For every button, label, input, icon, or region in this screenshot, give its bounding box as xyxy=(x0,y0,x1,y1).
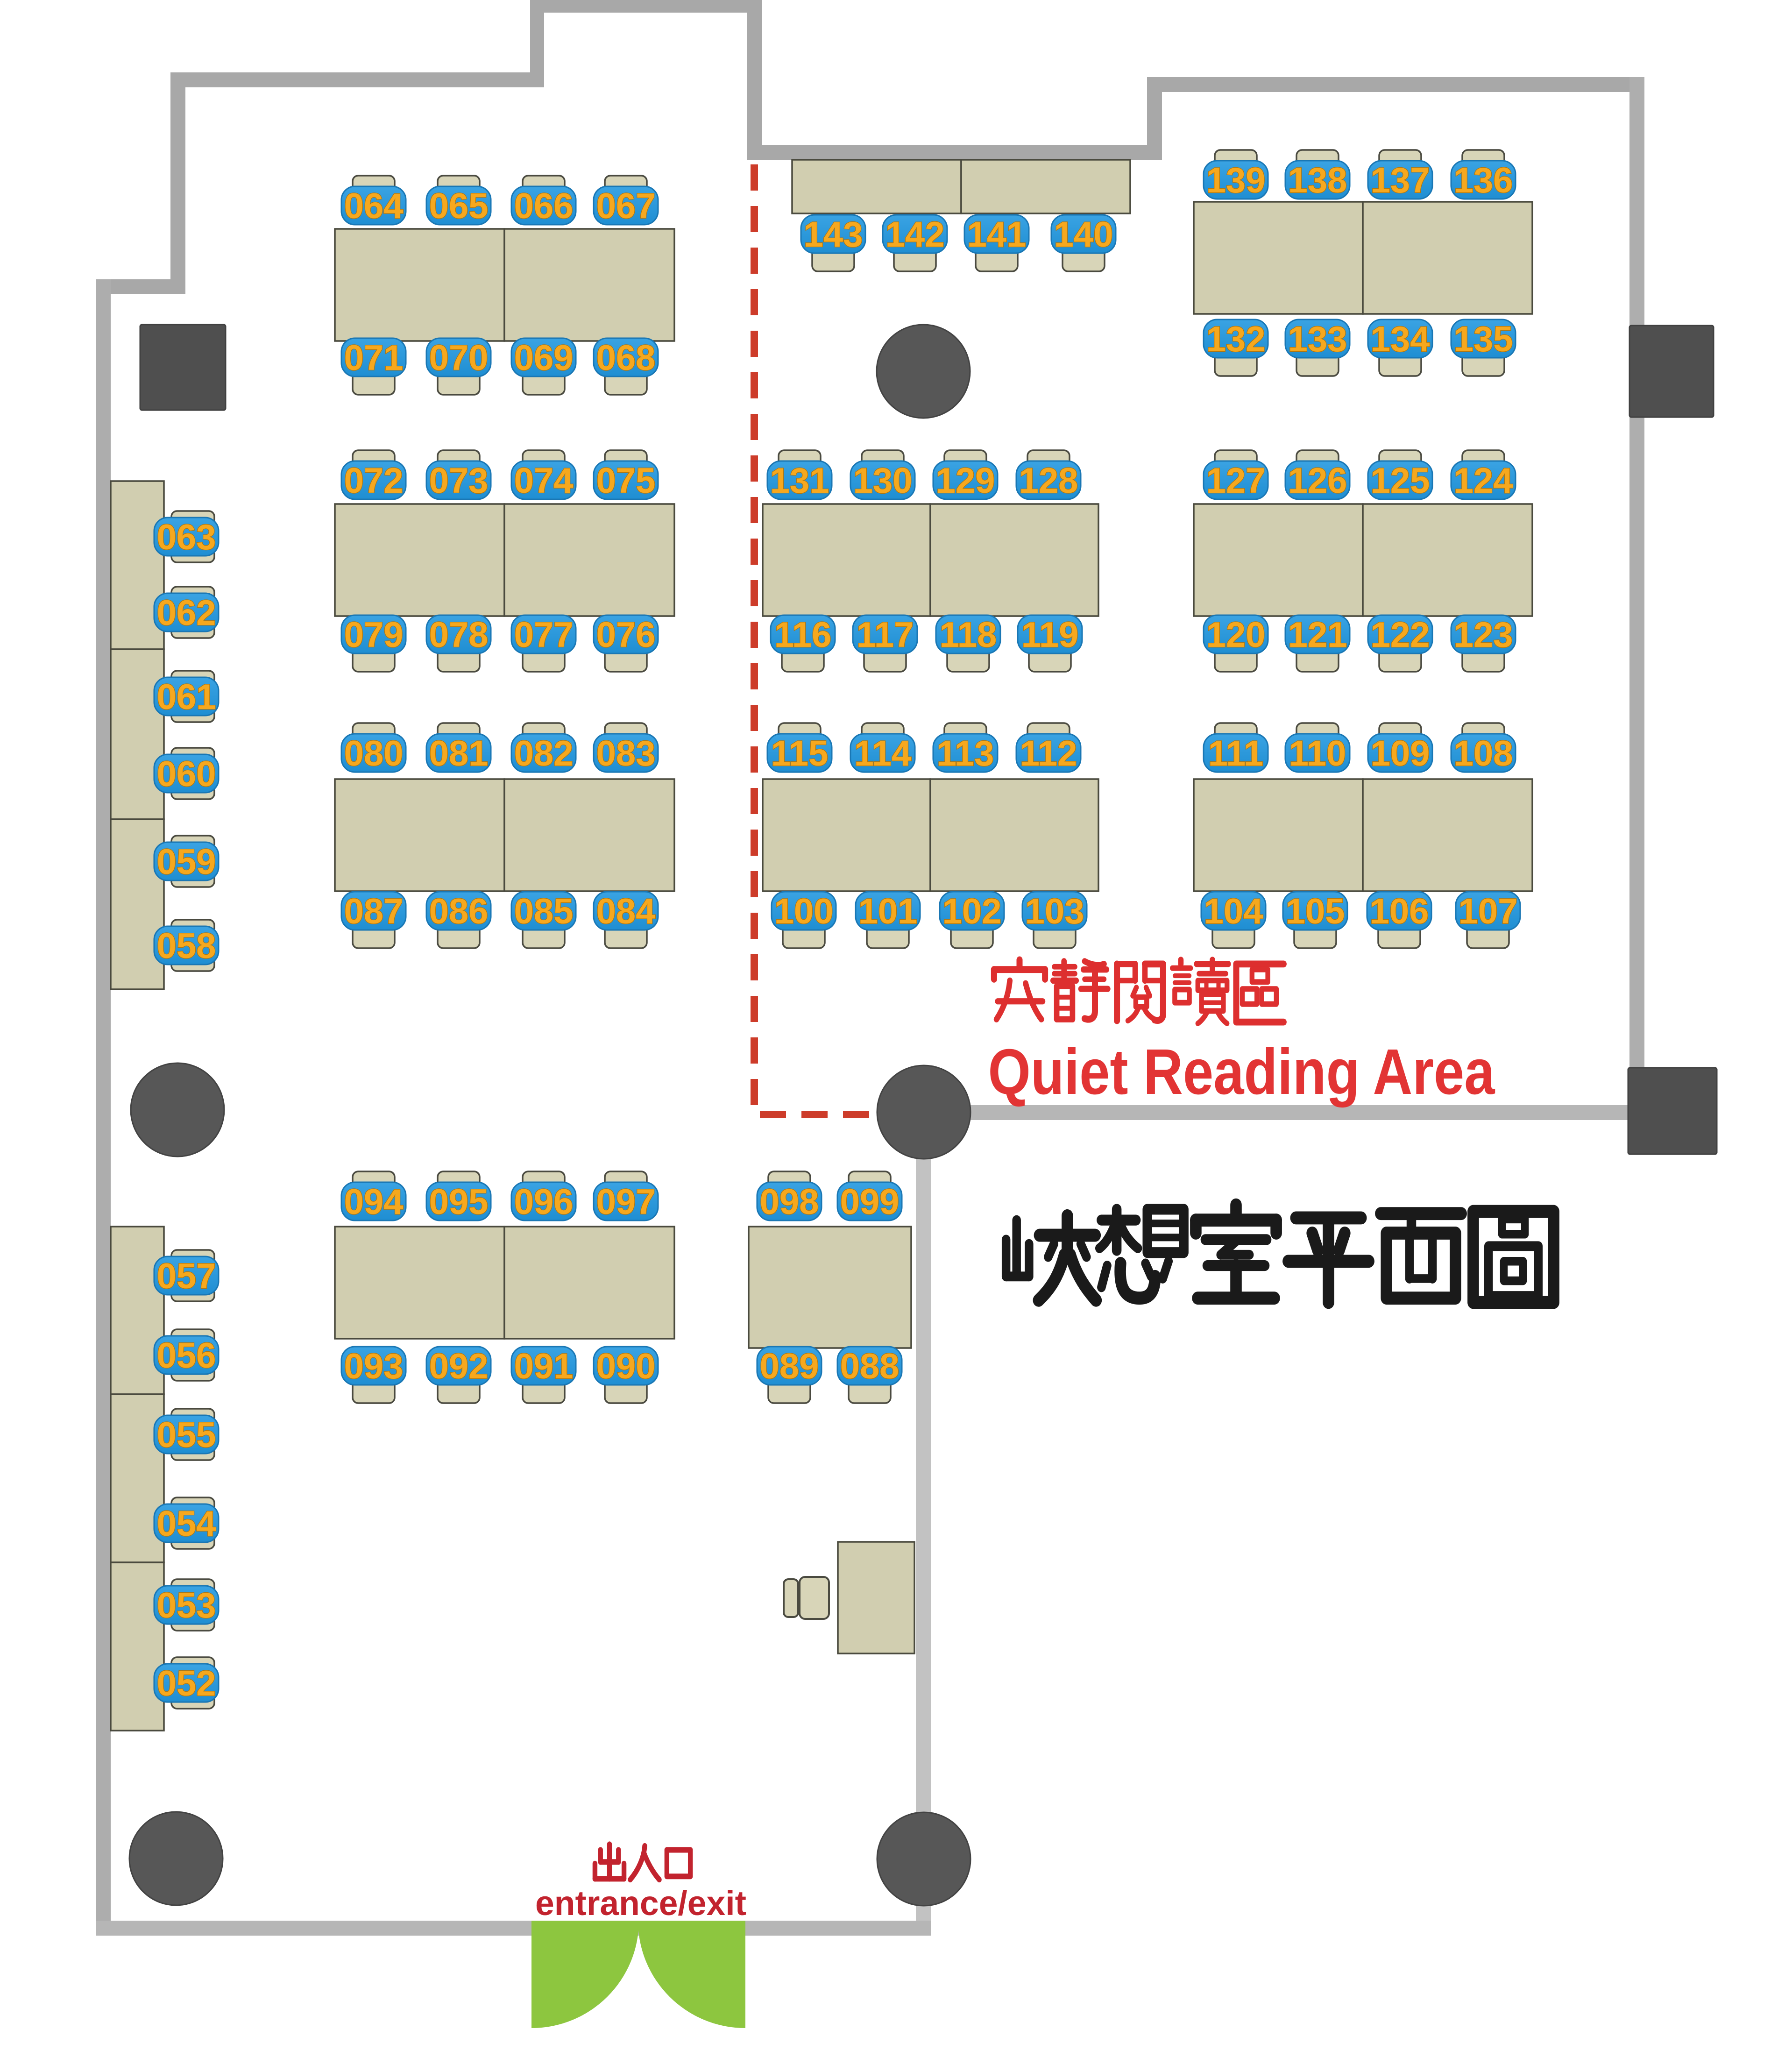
svg-text:099: 099 xyxy=(840,1182,900,1222)
svg-text:062: 062 xyxy=(157,593,216,633)
svg-text:108: 108 xyxy=(1454,734,1513,773)
svg-text:101: 101 xyxy=(858,892,918,931)
svg-text:Quiet Reading Area: Quiet Reading Area xyxy=(988,1036,1495,1108)
svg-text:122: 122 xyxy=(1371,615,1430,655)
svg-text:074: 074 xyxy=(514,461,574,501)
svg-text:082: 082 xyxy=(514,734,574,773)
svg-text:107: 107 xyxy=(1459,892,1518,931)
svg-text:136: 136 xyxy=(1454,161,1513,200)
svg-text:116: 116 xyxy=(774,615,832,655)
svg-text:113: 113 xyxy=(937,734,994,773)
svg-text:078: 078 xyxy=(429,615,489,655)
svg-text:109: 109 xyxy=(1371,734,1430,773)
svg-text:072: 072 xyxy=(344,461,404,501)
svg-text:117: 117 xyxy=(857,615,914,655)
svg-text:115: 115 xyxy=(771,734,829,773)
svg-text:086: 086 xyxy=(429,892,489,931)
svg-text:119: 119 xyxy=(1021,615,1079,655)
svg-text:138: 138 xyxy=(1288,161,1347,200)
svg-text:123: 123 xyxy=(1454,615,1513,655)
svg-text:100: 100 xyxy=(774,892,834,931)
svg-text:134: 134 xyxy=(1371,319,1430,359)
svg-text:069: 069 xyxy=(514,338,574,378)
svg-text:058: 058 xyxy=(157,926,216,966)
svg-text:132: 132 xyxy=(1206,319,1266,359)
svg-text:059: 059 xyxy=(157,842,216,882)
svg-text:063: 063 xyxy=(157,518,216,557)
svg-text:110: 110 xyxy=(1289,734,1346,773)
svg-text:060: 060 xyxy=(157,754,216,794)
svg-text:090: 090 xyxy=(596,1347,656,1386)
svg-text:084: 084 xyxy=(596,892,656,931)
svg-text:095: 095 xyxy=(429,1182,489,1222)
svg-text:055: 055 xyxy=(157,1415,216,1455)
svg-text:065: 065 xyxy=(429,186,489,226)
svg-text:057: 057 xyxy=(157,1256,216,1296)
svg-text:137: 137 xyxy=(1371,161,1430,200)
svg-text:091: 091 xyxy=(514,1347,574,1386)
svg-text:102: 102 xyxy=(942,892,1002,931)
svg-text:103: 103 xyxy=(1025,892,1084,931)
svg-text:121: 121 xyxy=(1288,615,1347,655)
svg-text:085: 085 xyxy=(514,892,574,931)
svg-text:124: 124 xyxy=(1454,461,1513,501)
svg-text:052: 052 xyxy=(157,1664,216,1703)
svg-text:118: 118 xyxy=(940,615,997,655)
svg-text:126: 126 xyxy=(1288,461,1347,501)
svg-text:139: 139 xyxy=(1206,161,1266,200)
svg-text:054: 054 xyxy=(157,1504,216,1544)
svg-text:076: 076 xyxy=(596,615,656,655)
svg-text:105: 105 xyxy=(1286,892,1345,931)
svg-text:104: 104 xyxy=(1204,892,1263,931)
svg-text:089: 089 xyxy=(760,1347,819,1386)
svg-text:141: 141 xyxy=(967,215,1027,255)
svg-text:120: 120 xyxy=(1206,615,1266,655)
svg-text:067: 067 xyxy=(596,186,656,226)
svg-text:129: 129 xyxy=(936,461,995,501)
svg-text:094: 094 xyxy=(344,1182,404,1222)
svg-text:087: 087 xyxy=(344,892,404,931)
svg-text:140: 140 xyxy=(1054,215,1113,255)
svg-text:075: 075 xyxy=(596,461,656,501)
svg-text:142: 142 xyxy=(885,215,945,255)
svg-text:135: 135 xyxy=(1454,319,1513,359)
svg-text:079: 079 xyxy=(344,615,404,655)
svg-text:096: 096 xyxy=(514,1182,574,1222)
svg-text:143: 143 xyxy=(804,215,863,255)
svg-text:127: 127 xyxy=(1206,461,1266,501)
svg-text:053: 053 xyxy=(157,1586,216,1625)
svg-text:106: 106 xyxy=(1370,892,1429,931)
svg-text:066: 066 xyxy=(514,186,574,226)
svg-text:130: 130 xyxy=(853,461,913,501)
svg-text:064: 064 xyxy=(344,186,404,226)
svg-text:077: 077 xyxy=(514,615,574,655)
svg-text:125: 125 xyxy=(1371,461,1430,501)
svg-text:071: 071 xyxy=(344,338,404,378)
svg-text:098: 098 xyxy=(760,1182,819,1222)
svg-text:133: 133 xyxy=(1288,319,1347,359)
svg-text:068: 068 xyxy=(596,338,656,378)
svg-text:080: 080 xyxy=(344,734,404,773)
svg-text:056: 056 xyxy=(157,1336,216,1376)
svg-text:093: 093 xyxy=(344,1347,404,1386)
svg-text:061: 061 xyxy=(157,677,216,717)
svg-text:088: 088 xyxy=(840,1347,900,1386)
svg-text:083: 083 xyxy=(596,734,656,773)
svg-text:131: 131 xyxy=(770,461,829,501)
svg-text:111: 111 xyxy=(1208,734,1263,773)
svg-text:112: 112 xyxy=(1020,734,1077,773)
svg-text:128: 128 xyxy=(1019,461,1078,501)
svg-text:070: 070 xyxy=(429,338,489,378)
svg-text:081: 081 xyxy=(429,734,489,773)
svg-text:114: 114 xyxy=(854,734,912,773)
svg-text:092: 092 xyxy=(429,1347,489,1386)
svg-text:097: 097 xyxy=(596,1182,656,1222)
svg-text:entrance/exit: entrance/exit xyxy=(535,1884,746,1923)
svg-text:073: 073 xyxy=(429,461,489,501)
